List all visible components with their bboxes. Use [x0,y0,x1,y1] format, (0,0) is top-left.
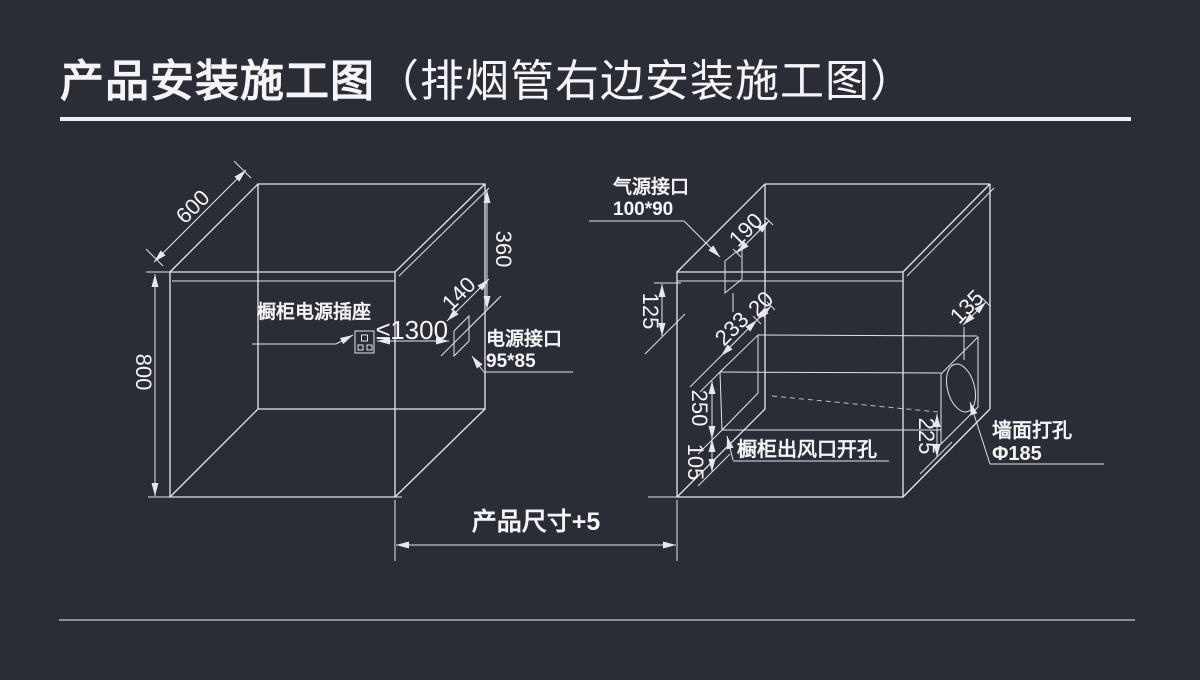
dim-105-label: 105 [683,444,708,481]
cabinet-socket-callout: 橱柜电源插座 [252,300,371,344]
dim-600: 600 [146,161,251,266]
dim-360-label: 360 [491,231,516,268]
dim-20-label: 20 [743,286,778,321]
wall-hole-panel [941,337,978,444]
dim-125-label: 125 [638,293,663,330]
dim-140: 140 [437,272,489,321]
dim-225: 225 [914,414,952,474]
wall-hole-diameter: Φ185 [992,443,1042,465]
wall-hole-callout: 墙面打孔 Φ185 [970,402,1104,465]
footer-divider [59,619,1135,621]
dim-125: 125 [638,283,685,354]
dim-140-label: 140 [437,272,481,316]
dim-225-label: 225 [914,418,939,455]
installation-diagram: 600 800 360 140 [0,0,1200,680]
power-socket-icon [355,331,374,353]
dim-360: 360 [468,190,516,329]
dim-233-label: 233 [710,307,754,351]
wall-hole-circle [942,361,981,415]
dim-105: 105 [683,439,730,486]
power-port-label: 电源接口 [486,327,562,350]
wall-hole-label: 墙面打孔 [992,418,1072,442]
dim-135: 135 [945,285,990,360]
vent-duct [720,335,980,444]
dim-135-label: 135 [945,285,989,329]
product-width-label: 产品尺寸+5 [472,508,601,536]
dim-1300-label: ≤1300 [376,315,448,345]
dim-250-label: 250 [687,390,712,427]
installation-drawing-page: 产品安装施工图（排烟管右边安装施工图） [0,0,1200,680]
dim-product-width: 产品尺寸+5 [395,500,677,561]
dim-20: 20 [743,286,778,321]
vent-cutout-label: 橱柜出风口开孔 [737,437,877,461]
dim-600-label: 600 [171,185,215,229]
power-port-callout: 电源接口 95*85 [472,327,573,372]
dim-190-label: 190 [724,208,768,252]
dim-233: 233 [690,307,761,387]
dim-1300: ≤1300 [376,315,449,345]
gas-port-hole [725,247,742,312]
cabinet-socket-label: 橱柜电源插座 [256,300,371,323]
gas-port-callout: 气源接口 100*90 [589,175,720,257]
dim-800-label: 800 [131,354,156,391]
gas-port-size: 100*90 [613,199,673,220]
vent-cutout-callout: 橱柜出风口开孔 [727,436,889,461]
power-port-size: 95*85 [486,351,536,372]
dim-800: 800 [131,272,175,496]
gas-port-label: 气源接口 [612,175,689,198]
